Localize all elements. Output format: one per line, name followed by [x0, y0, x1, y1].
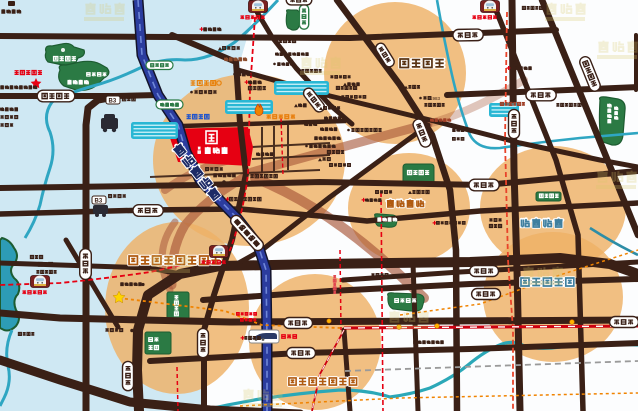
svg-text:B3: B3: [109, 99, 117, 105]
svg-text:1983: 1983: [430, 96, 441, 101]
svg-text:B3: B3: [95, 199, 103, 205]
